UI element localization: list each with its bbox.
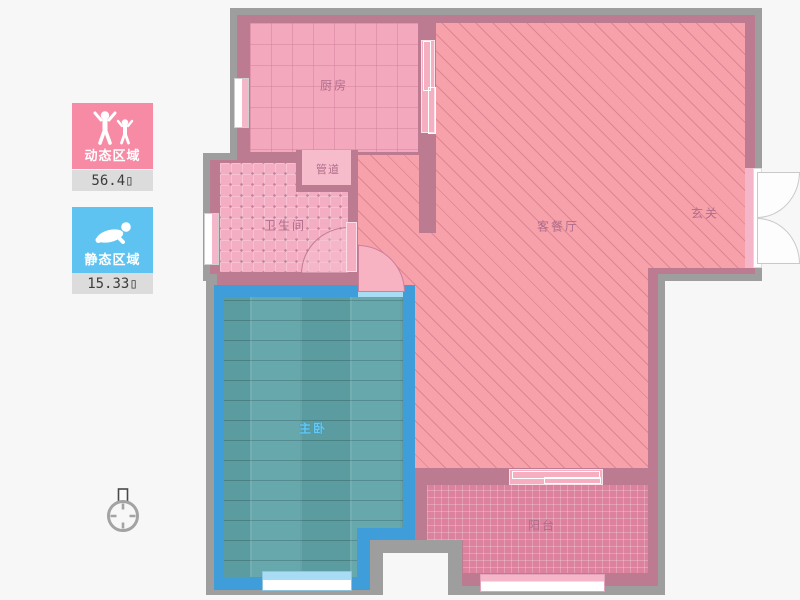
room-label-bathroom: 卫生间 <box>264 217 306 234</box>
room-label-kitchen: 厨房 <box>320 77 348 94</box>
legend-dynamic-area-label: 动态区域 <box>72 145 153 164</box>
person-lying-icon <box>90 214 136 248</box>
legend-static-area-card: 静态区域 <box>72 207 153 273</box>
kitchen-sliding-door <box>421 40 435 133</box>
kitchen-window <box>234 78 249 128</box>
balcony-sliding-door <box>509 469 603 485</box>
entrance-door-swing-arc-top <box>757 172 800 218</box>
room-label-entry: 玄关 <box>691 205 719 222</box>
floorplan-canvas: 厨房 管道 卫生间 客餐厅 玄关 主卧 阳台 动态区域 56.4▯ 静态区域 1… <box>0 0 800 600</box>
room-label-living: 客餐厅 <box>537 218 579 235</box>
kitchen-sliding-door-panel <box>428 87 436 134</box>
figures-cheering-icon <box>90 110 136 146</box>
balcony-sliding-door-panel <box>544 477 601 484</box>
legend-static-area-value: 15.33▯ <box>72 273 153 294</box>
compass-icon <box>98 486 148 536</box>
room-label-balcony: 阳台 <box>528 517 556 534</box>
bathroom-door-leaf <box>346 222 357 272</box>
kitchen-sliding-door-panel <box>423 41 431 91</box>
entrance-door-swing-arc-bottom <box>757 218 800 264</box>
legend-dynamic-area-card: 动态区域 <box>72 103 153 169</box>
room-label-bedroom: 主卧 <box>299 420 327 437</box>
room-label-duct: 管道 <box>316 161 340 177</box>
bedroom-window <box>262 571 352 591</box>
legend-dynamic-area-value: 56.4▯ <box>72 170 153 191</box>
legend-static-area-label: 静态区域 <box>72 249 153 268</box>
entrance-door-frame <box>745 168 753 268</box>
balcony-window <box>480 574 605 592</box>
notch-background <box>383 553 448 600</box>
bathroom-window <box>204 213 219 265</box>
dining-wall-stub <box>419 152 436 233</box>
